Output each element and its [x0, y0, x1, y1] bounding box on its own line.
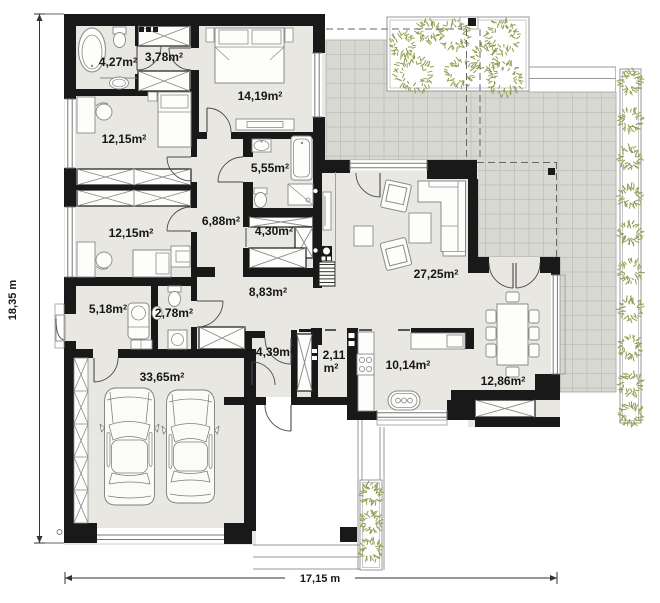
svg-text:27,25m2: 27,25m2	[414, 267, 459, 281]
svg-text:4,27m2: 4,27m2	[99, 55, 137, 69]
svg-text:33,65m2: 33,65m2	[140, 370, 185, 384]
svg-text:17,15 m: 17,15 m	[300, 573, 341, 585]
svg-text:6,88m2: 6,88m2	[202, 214, 240, 228]
svg-text:3,78m2: 3,78m2	[145, 50, 183, 64]
svg-text:2,78m2: 2,78m2	[155, 306, 193, 320]
svg-text:2,11: 2,11	[323, 348, 346, 362]
svg-text:10,14m2: 10,14m2	[386, 358, 431, 372]
svg-text:5,18m2: 5,18m2	[89, 302, 127, 316]
svg-text:5,55m2: 5,55m2	[251, 161, 289, 175]
svg-text:18,35 m: 18,35 m	[7, 280, 19, 321]
svg-text:8,83m2: 8,83m2	[249, 285, 287, 299]
svg-text:4,39m2: 4,39m2	[256, 345, 294, 359]
svg-text:12,86m2: 12,86m2	[481, 374, 526, 388]
svg-text:4,30m2: 4,30m2	[255, 224, 293, 238]
svg-text:12,15m2: 12,15m2	[102, 132, 147, 146]
svg-text:14,19m2: 14,19m2	[238, 89, 283, 103]
svg-text:12,15m2: 12,15m2	[109, 226, 154, 240]
